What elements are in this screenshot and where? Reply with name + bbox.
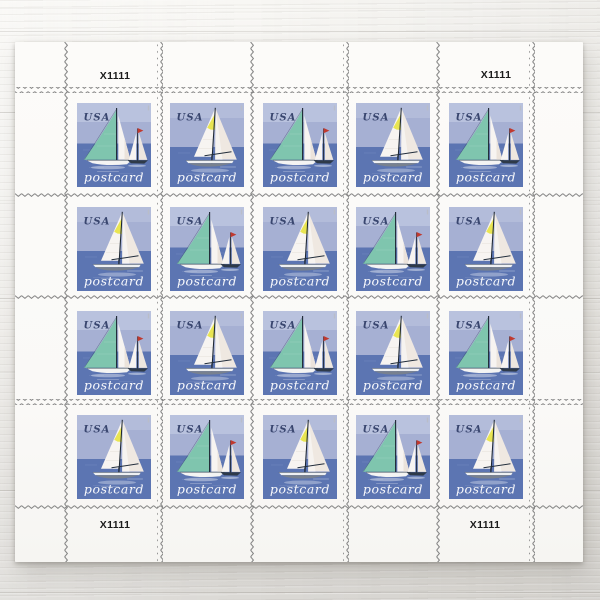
postcard-stamp xyxy=(449,311,523,395)
stamp-cell xyxy=(67,402,160,507)
postcard-stamp xyxy=(263,311,337,395)
postcard-stamp xyxy=(263,207,337,291)
plate-number-top-right: X1111 xyxy=(481,69,512,81)
stamp-cell xyxy=(253,298,346,402)
postcard-stamp xyxy=(170,207,244,291)
stamp-cell xyxy=(253,90,346,194)
stamp-cell xyxy=(160,402,253,507)
stamp-cell xyxy=(67,194,160,298)
stamp-cell xyxy=(439,298,532,402)
stamp-cell xyxy=(346,90,439,194)
postcard-stamp xyxy=(170,311,244,395)
stamp-cell xyxy=(67,298,160,402)
stamp-cell xyxy=(160,90,253,194)
postcard-stamp xyxy=(449,103,523,187)
photo-scene: USA postcard xyxy=(0,0,600,600)
postcard-stamp xyxy=(77,415,151,499)
stamp-cell xyxy=(346,402,439,507)
postcard-stamp xyxy=(263,103,337,187)
plank-gap xyxy=(0,592,600,594)
stamp-sheet: X1111 X1111 X1111 X1111 xyxy=(15,42,583,562)
postcard-stamp xyxy=(356,207,430,291)
stamp-grid xyxy=(67,90,532,507)
stamp-cell xyxy=(346,194,439,298)
postcard-stamp xyxy=(449,415,523,499)
plate-number-top-left: X1111 xyxy=(100,70,131,82)
postcard-stamp xyxy=(77,311,151,395)
stamp-cell xyxy=(253,194,346,298)
postcard-stamp xyxy=(356,415,430,499)
stamp-cell xyxy=(67,90,160,194)
postcard-stamp xyxy=(77,207,151,291)
stamp-cell xyxy=(439,90,532,194)
postcard-stamp xyxy=(356,103,430,187)
stamp-cell xyxy=(160,194,253,298)
postcard-stamp xyxy=(170,415,244,499)
stamp-cell xyxy=(439,194,532,298)
stamp-cell xyxy=(160,298,253,402)
postcard-stamp xyxy=(449,207,523,291)
stamp-cell xyxy=(253,402,346,507)
plank-gap xyxy=(0,8,600,10)
postcard-stamp xyxy=(170,103,244,187)
stamp-cell xyxy=(439,402,532,507)
plate-number-bottom-left: X1111 xyxy=(100,519,131,531)
postcard-stamp xyxy=(263,415,337,499)
plate-number-bottom-right: X1111 xyxy=(470,519,501,531)
plank-gap xyxy=(0,31,600,33)
stamp-cell xyxy=(346,298,439,402)
postcard-stamp xyxy=(77,103,151,187)
postcard-stamp xyxy=(356,311,430,395)
